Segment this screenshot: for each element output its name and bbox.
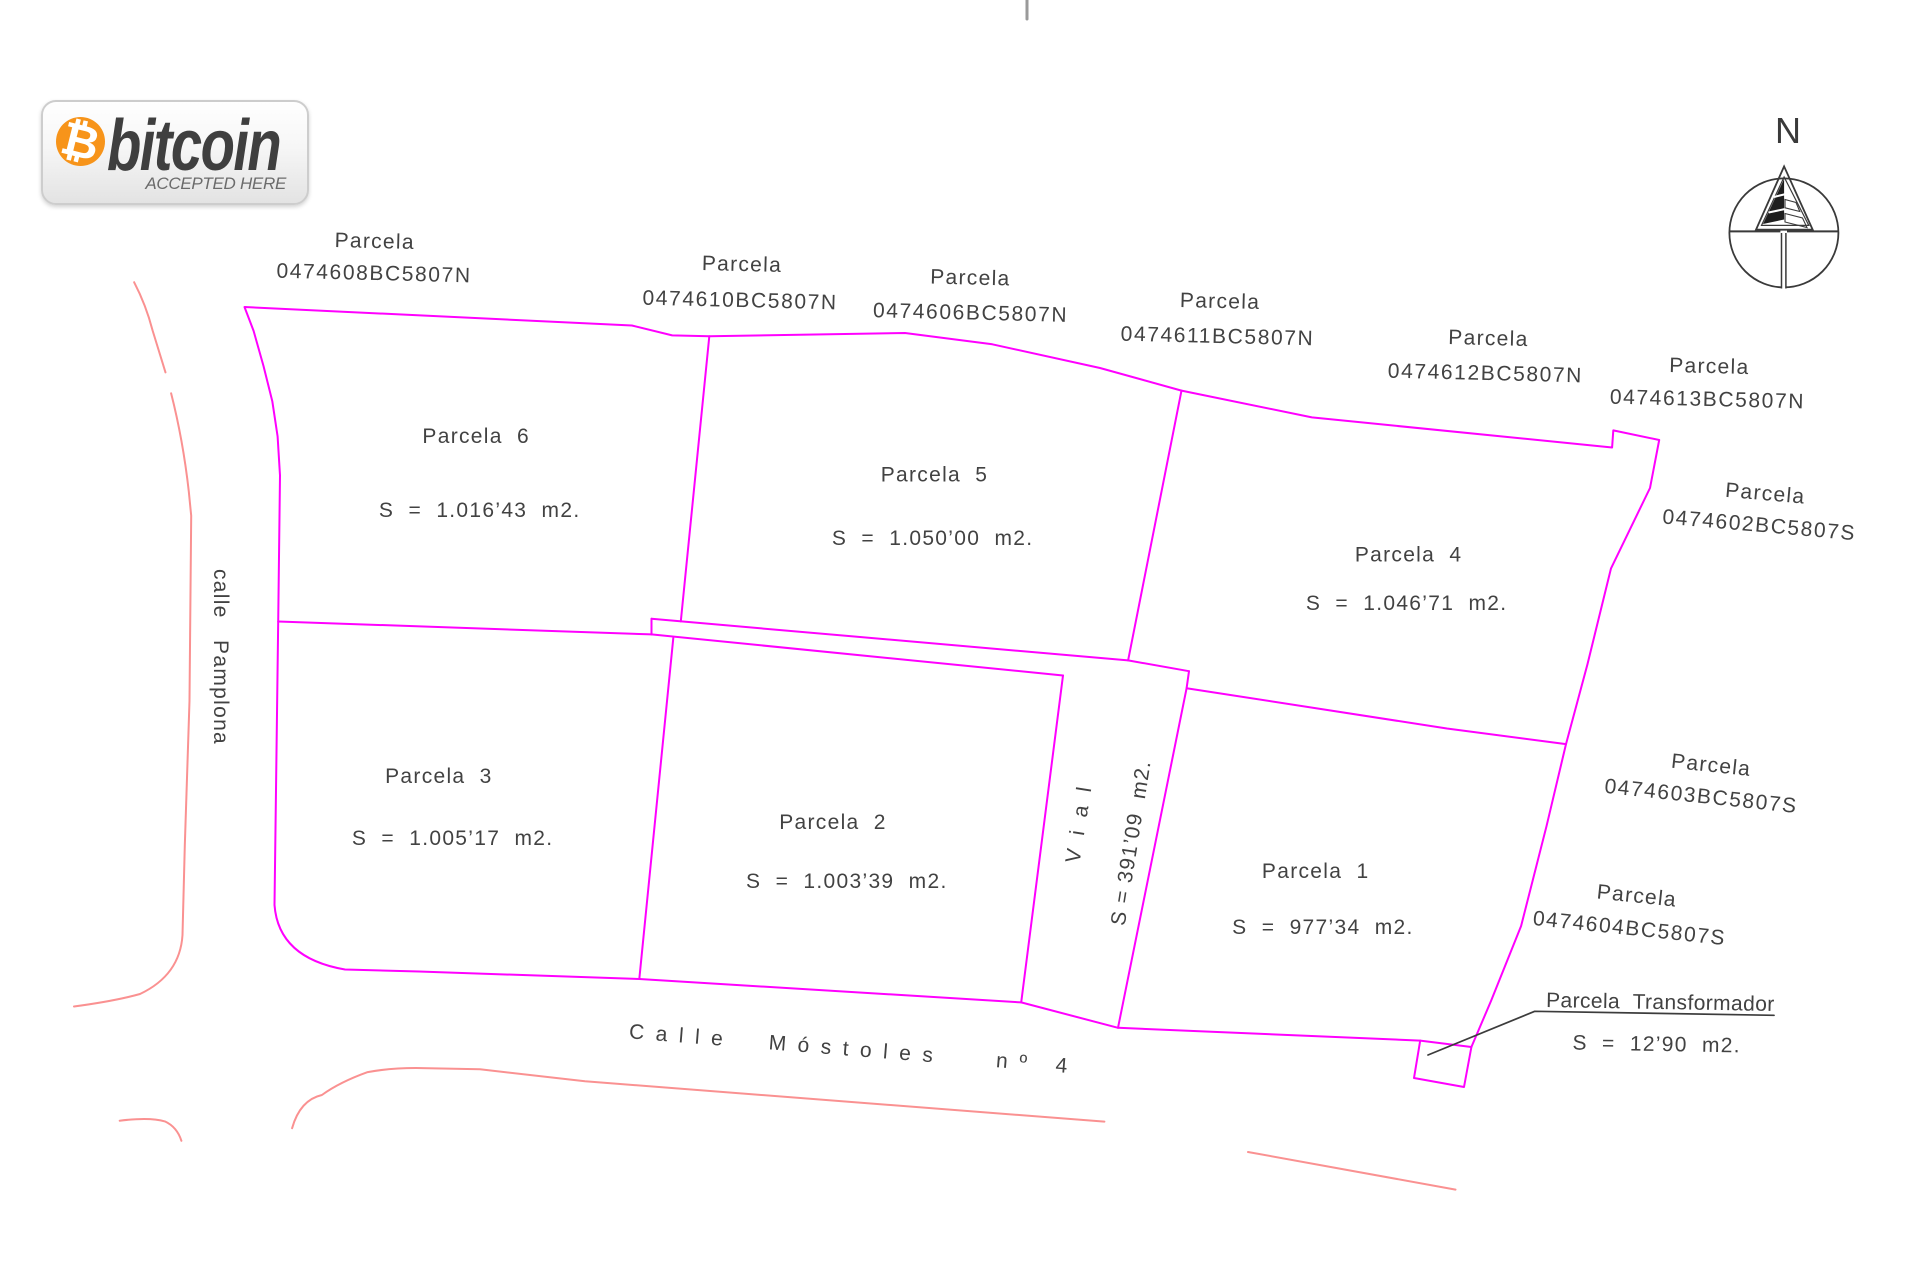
svg-text:Calle Móstoles nº 4: Calle Móstoles nº 4	[628, 1020, 1079, 1078]
svg-text:Parcela: Parcela	[702, 252, 783, 277]
svg-text:Parcela 1: Parcela 1	[1262, 860, 1370, 883]
svg-text:S = 1.050’00 m2.: S = 1.050’00 m2.	[832, 527, 1034, 550]
svg-text:Parcela: Parcela	[1596, 880, 1678, 911]
svg-text:S = 1.003’39 m2.: S = 1.003’39 m2.	[746, 870, 948, 893]
svg-text:Parcela: Parcela	[1669, 354, 1750, 379]
svg-text:Parcela: Parcela	[930, 266, 1011, 291]
svg-text:Parcela 3: Parcela 3	[385, 765, 493, 788]
svg-text:0474610BC5807N: 0474610BC5807N	[642, 287, 838, 315]
svg-text:Parcela: Parcela	[1670, 750, 1752, 781]
svg-text:V i a l: V i a l	[1062, 781, 1097, 864]
svg-text:N: N	[1775, 110, 1801, 151]
svg-text:Parcela Transformador: Parcela Transformador	[1546, 989, 1775, 1016]
svg-text:S = 977’34 m2.: S = 977’34 m2.	[1232, 916, 1413, 939]
svg-text:0474606BC5807N: 0474606BC5807N	[873, 299, 1069, 327]
svg-text:S = 1.046’71 m2.: S = 1.046’71 m2.	[1306, 592, 1508, 615]
svg-text:0474602BC5807S: 0474602BC5807S	[1662, 505, 1857, 545]
svg-text:Parcela: Parcela	[1724, 479, 1806, 509]
svg-text:S = 391’09 m2.: S = 391’09 m2.	[1107, 758, 1156, 927]
svg-text:Parcela 2: Parcela 2	[779, 811, 887, 834]
svg-text:Parcela 4: Parcela 4	[1355, 544, 1463, 567]
svg-text:0474612BC5807N: 0474612BC5807N	[1388, 360, 1584, 388]
svg-text:S = 12’90 m2.: S = 12’90 m2.	[1572, 1031, 1741, 1057]
svg-text:S = 1.016’43 m2.: S = 1.016’43 m2.	[379, 499, 581, 522]
svg-text:Parcela: Parcela	[334, 229, 415, 254]
svg-text:Parcela 6: Parcela 6	[422, 425, 530, 448]
svg-text:0474604BC5807S: 0474604BC5807S	[1532, 907, 1727, 950]
svg-text:0474613BC5807N: 0474613BC5807N	[1610, 386, 1806, 414]
svg-text:0474608BC5807N: 0474608BC5807N	[276, 260, 472, 288]
svg-text:0474603BC5807S: 0474603BC5807S	[1603, 775, 1798, 818]
svg-text:calle Pamplona: calle Pamplona	[209, 569, 232, 745]
svg-text:Parcela: Parcela	[1448, 326, 1529, 351]
svg-text:Parcela 5: Parcela 5	[881, 464, 989, 487]
svg-text:0474611BC5807N: 0474611BC5807N	[1120, 323, 1314, 351]
svg-text:Parcela: Parcela	[1180, 289, 1261, 314]
svg-text:S = 1.005’17 m2.: S = 1.005’17 m2.	[352, 827, 554, 850]
